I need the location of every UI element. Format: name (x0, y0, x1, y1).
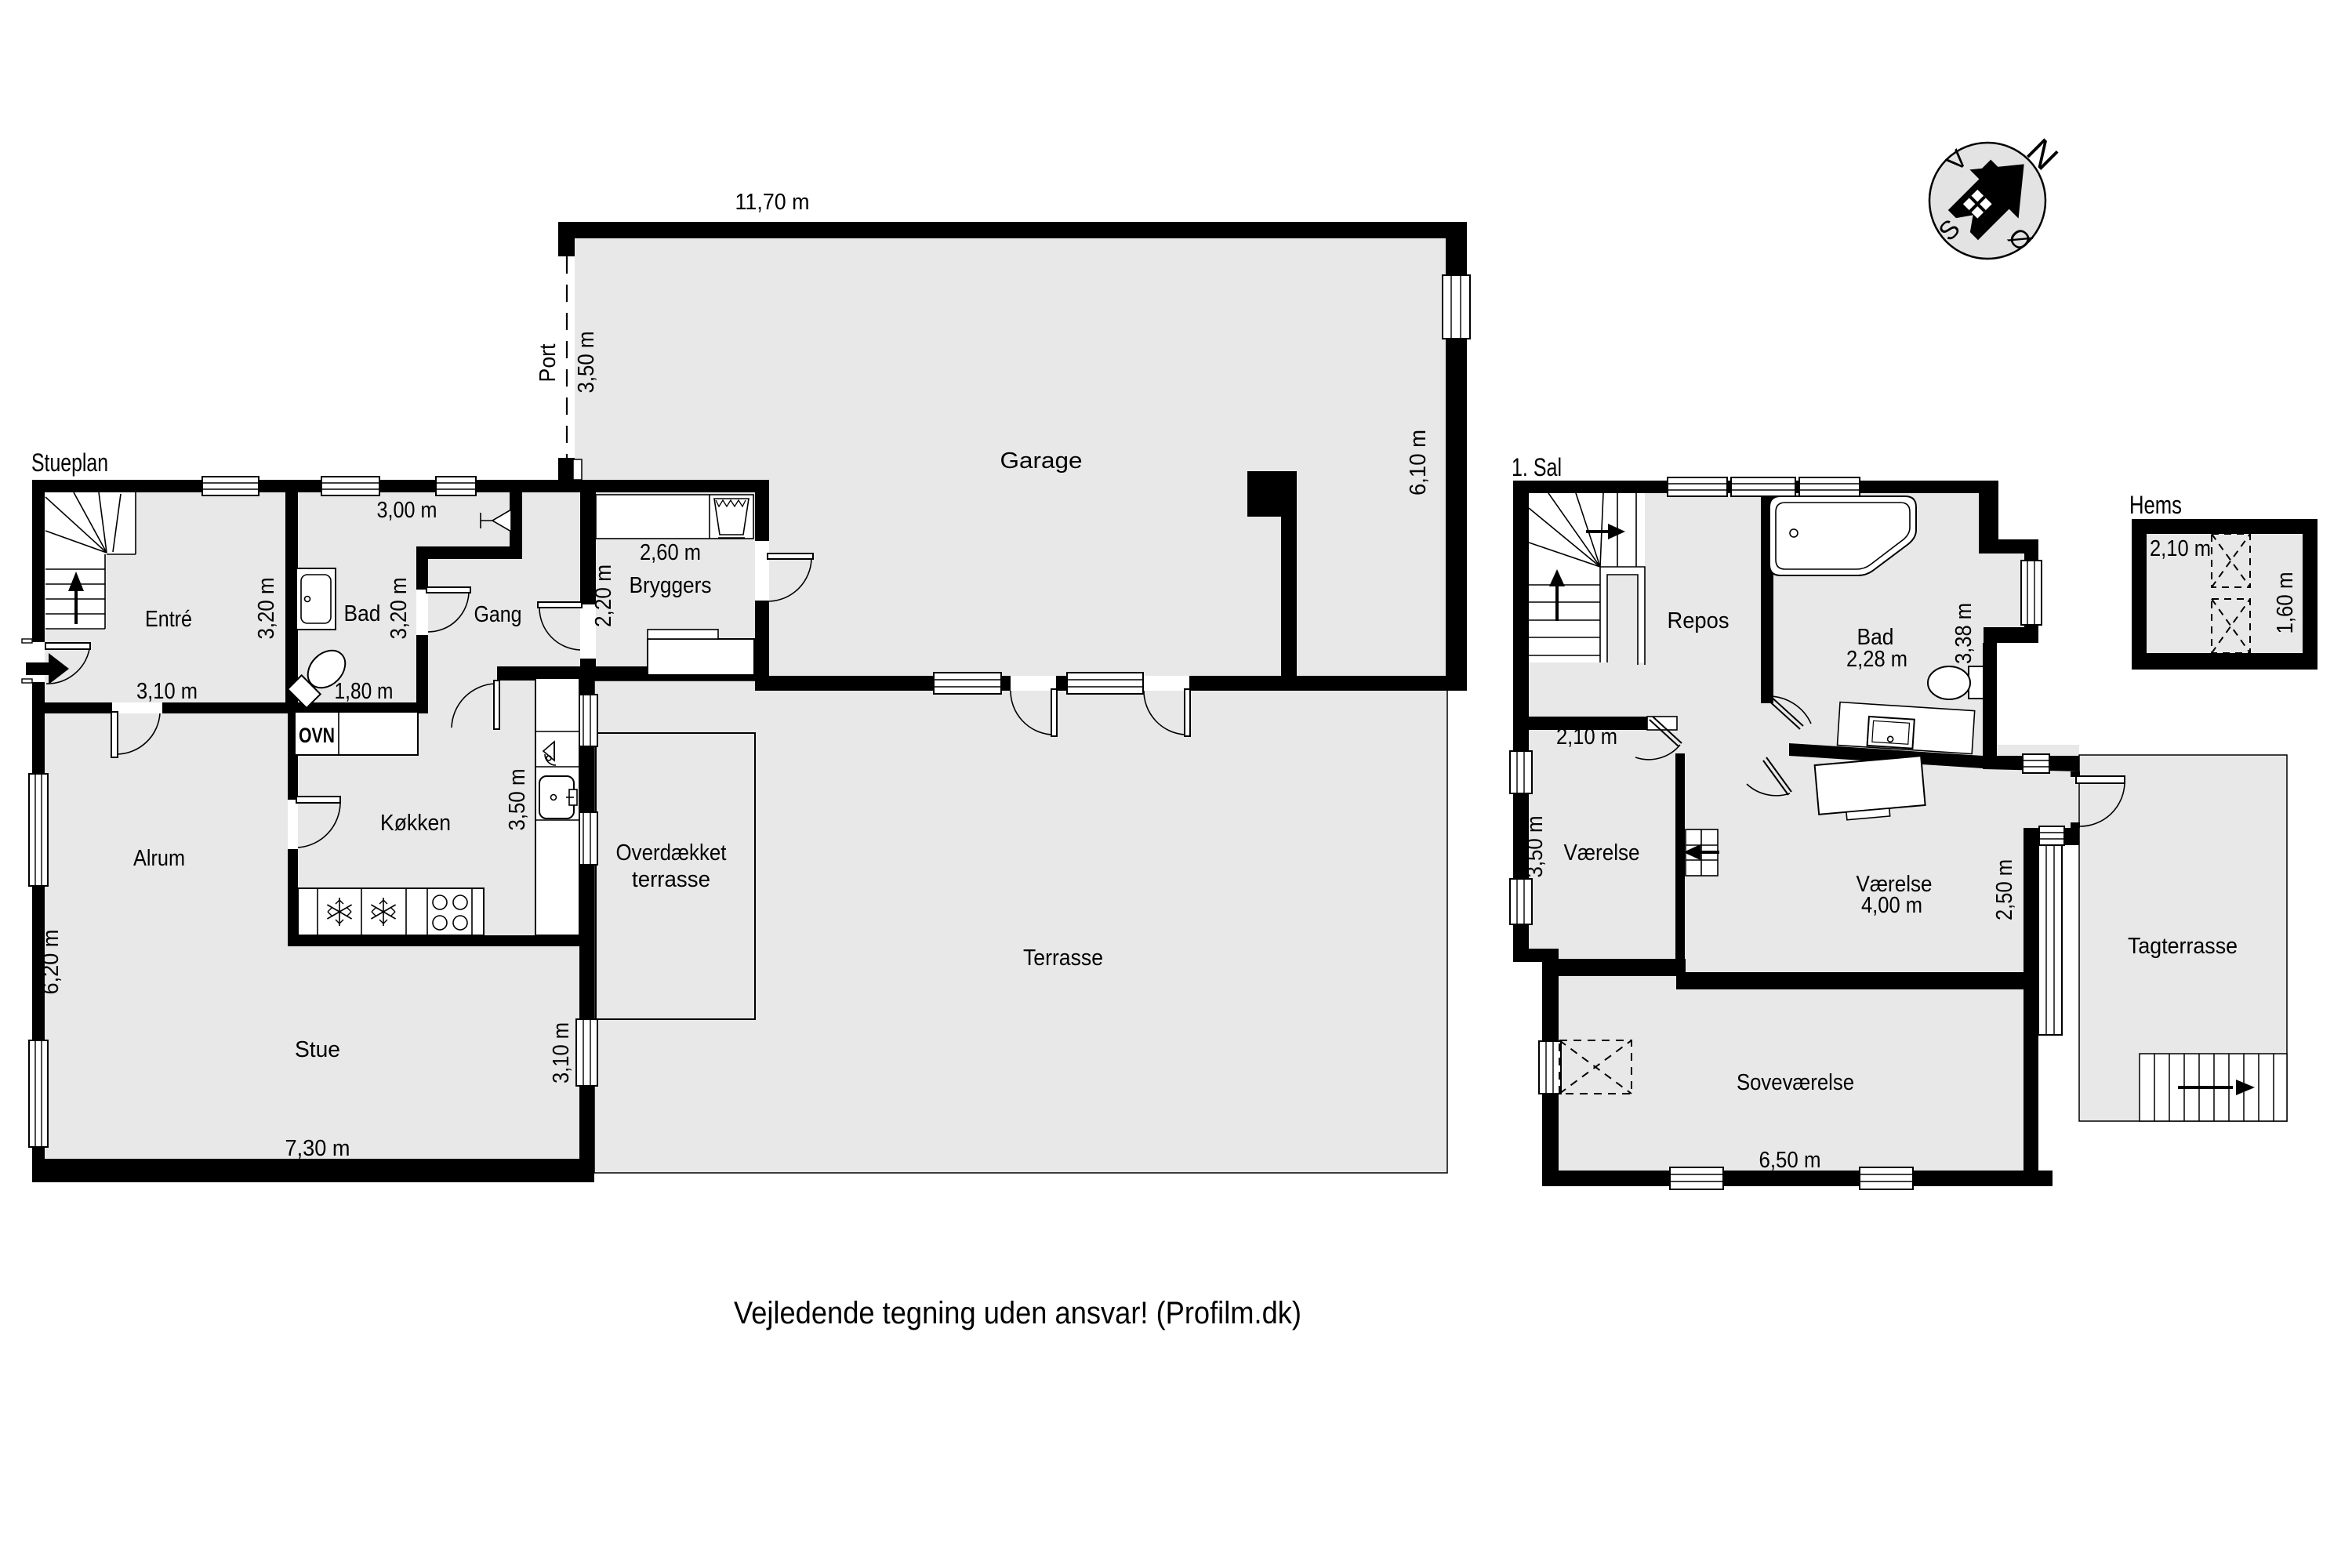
svg-text:Værelse: Værelse (1564, 840, 1640, 866)
svg-text:3,10 m: 3,10 m (549, 1022, 574, 1083)
svg-text:Tagterrasse: Tagterrasse (2128, 934, 2238, 959)
svg-text:Port: Port (535, 344, 561, 383)
svg-text:3,10 m: 3,10 m (136, 679, 198, 704)
svg-text:Hems: Hems (2129, 491, 2182, 519)
svg-text:Vejledende tegning uden ansvar: Vejledende tegning uden ansvar! (Profilm… (734, 1296, 1301, 1330)
svg-text:11,70 m: 11,70 m (735, 190, 810, 215)
svg-text:6,20 m: 6,20 m (38, 930, 64, 995)
svg-text:3,20 m: 3,20 m (254, 578, 279, 640)
svg-text:6,10 m: 6,10 m (1406, 430, 1431, 495)
svg-text:3,50 m: 3,50 m (574, 332, 599, 394)
svg-text:1,80 m: 1,80 m (335, 679, 394, 704)
svg-text:Garage: Garage (1000, 448, 1083, 474)
svg-text:2,50 m: 2,50 m (1992, 859, 2017, 920)
svg-text:4,00 m: 4,00 m (1861, 893, 1922, 918)
svg-text:Stue: Stue (295, 1037, 340, 1062)
svg-text:Bryggers: Bryggers (630, 573, 712, 598)
svg-text:2,60 m: 2,60 m (640, 540, 701, 565)
svg-text:2,10 m: 2,10 m (1556, 724, 1617, 750)
svg-text:Terrasse: Terrasse (1023, 946, 1103, 971)
svg-text:Entré: Entré (145, 607, 192, 632)
svg-text:3,38 m: 3,38 m (1951, 603, 1976, 664)
svg-text:Stueplan: Stueplan (31, 448, 108, 477)
svg-text:Alrum: Alrum (133, 846, 185, 871)
svg-text:2,28 m: 2,28 m (1846, 647, 1907, 672)
svg-text:2,10 m: 2,10 m (2150, 536, 2211, 561)
svg-text:Soveværelse: Soveværelse (1737, 1070, 1854, 1095)
svg-text:Gang: Gang (474, 602, 522, 627)
svg-text:Overdækket: Overdækket (616, 840, 727, 866)
svg-text:6,50 m: 6,50 m (1759, 1148, 1821, 1173)
svg-text:terrasse: terrasse (632, 867, 710, 892)
svg-text:3,50 m: 3,50 m (505, 769, 530, 831)
svg-text:OVN: OVN (299, 724, 335, 747)
svg-text:7,30 m: 7,30 m (285, 1136, 350, 1161)
svg-text:Køkken: Køkken (380, 811, 451, 836)
svg-text:Repos: Repos (1668, 608, 1730, 633)
svg-text:3,00 m: 3,00 m (377, 498, 437, 523)
svg-text:1,60 m: 1,60 m (2273, 572, 2298, 634)
svg-text:3,20 m: 3,20 m (387, 578, 412, 640)
svg-text:3,50 m: 3,50 m (1523, 816, 1548, 878)
svg-text:Bad: Bad (344, 601, 381, 626)
svg-text:1. Sal: 1. Sal (1512, 453, 1562, 481)
svg-text:2,20 m: 2,20 m (591, 564, 616, 627)
